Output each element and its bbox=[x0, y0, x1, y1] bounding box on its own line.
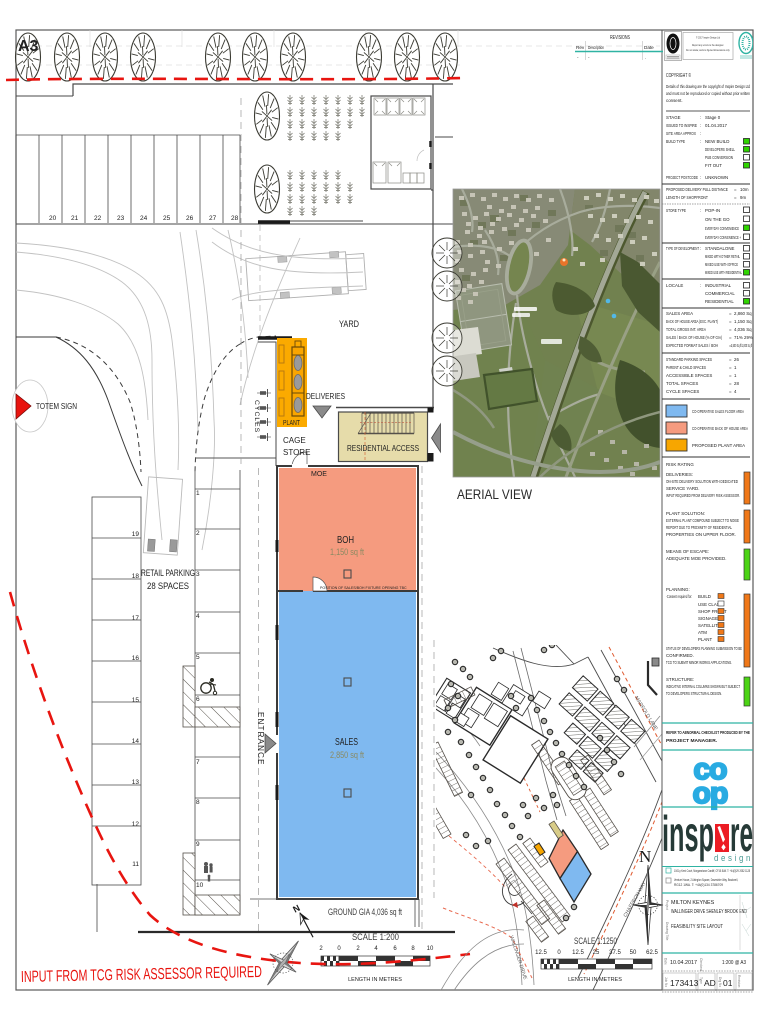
svg-text:NEW BUILD: NEW BUILD bbox=[705, 139, 729, 144]
svg-text::: : bbox=[700, 115, 701, 120]
svg-text:N: N bbox=[639, 847, 651, 866]
svg-text:10: 10 bbox=[427, 946, 434, 952]
svg-text:STRUCTURE:: STRUCTURE: bbox=[666, 677, 694, 682]
svg-text:10m: 10m bbox=[740, 187, 749, 192]
svg-text:MILTON KEYNES: MILTON KEYNES bbox=[671, 900, 715, 906]
svg-text:EVERYDAY CONVENIENCE +: EVERYDAY CONVENIENCE + bbox=[705, 235, 741, 240]
svg-text:6: 6 bbox=[196, 696, 200, 703]
svg-text:19: 19 bbox=[132, 531, 140, 538]
svg-text::: : bbox=[700, 208, 701, 213]
svg-text:=: = bbox=[734, 187, 737, 192]
svg-text:INPUT REQUIRED FROM DELIVERY R: INPUT REQUIRED FROM DELIVERY RISK ASSESS… bbox=[666, 493, 740, 498]
svg-text::: : bbox=[700, 246, 701, 251]
svg-text:RESIDENTIAL: RESIDENTIAL bbox=[705, 299, 734, 304]
svg-text:8: 8 bbox=[196, 799, 200, 806]
svg-text:21: 21 bbox=[71, 215, 79, 222]
svg-text:15: 15 bbox=[132, 697, 140, 704]
svg-text:EVERYDAY CONVENIENCE: EVERYDAY CONVENIENCE bbox=[705, 226, 739, 231]
svg-text:© 2017 Inspire Design Ltd: © 2017 Inspire Design Ltd bbox=[696, 36, 720, 40]
svg-text:MOE: MOE bbox=[311, 471, 327, 478]
svg-text:MIXED USE WITH RESIDENTIAL: MIXED USE WITH RESIDENTIAL bbox=[705, 270, 742, 275]
svg-text:REVISIONS: REVISIONS bbox=[610, 35, 630, 41]
svg-text:YARD: YARD bbox=[339, 319, 359, 329]
svg-text:BOH: BOH bbox=[337, 535, 354, 546]
svg-text:25: 25 bbox=[593, 950, 600, 956]
svg-text:COMMERCIAL: COMMERCIAL bbox=[705, 291, 735, 296]
svg-text:TCG TO SUBMIT MINOR WORKS APPL: TCG TO SUBMIT MINOR WORKS APPLICATIONS. bbox=[666, 660, 732, 665]
svg-text:SALES / BACK OF HOUSE (% OF GI: SALES / BACK OF HOUSE (% OF GIA) bbox=[666, 335, 722, 340]
svg-text:PROPOSED PLANT AREA: PROPOSED PLANT AREA bbox=[692, 443, 745, 448]
svg-text:28 SPACES: 28 SPACES bbox=[147, 581, 189, 592]
svg-text:16: 16 bbox=[132, 655, 140, 662]
svg-text:CONFIRMED.: CONFIRMED. bbox=[666, 653, 694, 658]
svg-text:13: 13 bbox=[132, 779, 140, 786]
svg-text:MEANS OF ESCAPE:: MEANS OF ESCAPE: bbox=[666, 549, 709, 554]
svg-text:71% 29%: 71% 29% bbox=[734, 335, 753, 340]
svg-text:=: = bbox=[729, 327, 732, 332]
svg-text:CO-OPERATIVE BACK OF HOUSE ARE: CO-OPERATIVE BACK OF HOUSE AREA bbox=[692, 426, 748, 431]
svg-text:TOTAL SPACES: TOTAL SPACES bbox=[666, 381, 698, 386]
svg-text:26: 26 bbox=[734, 357, 739, 362]
svg-text:62.5: 62.5 bbox=[646, 950, 658, 956]
svg-text:ATM: ATM bbox=[698, 630, 707, 635]
svg-text:25: 25 bbox=[163, 215, 171, 222]
svg-text:WALLINGER DRIVE SHENLEY BROOK: WALLINGER DRIVE SHENLEY BROOK END bbox=[671, 909, 747, 915]
svg-text:=: = bbox=[729, 365, 732, 370]
svg-text:12.5: 12.5 bbox=[572, 950, 584, 956]
svg-text:=: = bbox=[734, 195, 737, 200]
svg-text:Rev: Rev bbox=[576, 45, 585, 50]
svg-text:and must not be reproduced or: and must not be reproduced or copied wit… bbox=[666, 91, 750, 96]
svg-text:PARENT & CHILD SPACES: PARENT & CHILD SPACES bbox=[666, 365, 706, 370]
svg-text:PROPERTIES ON UPPER FLOOR.: PROPERTIES ON UPPER FLOOR. bbox=[666, 532, 736, 537]
svg-text:CYCLES: CYCLES bbox=[253, 400, 260, 433]
svg-text:PROPOSED DELIVERY PULL DISTANC: PROPOSED DELIVERY PULL DISTANCE bbox=[666, 187, 728, 192]
svg-text:23: 23 bbox=[117, 215, 125, 222]
svg-text:1: 1 bbox=[196, 490, 200, 497]
svg-text:STATUS OF DEVELOPERS PLANNING: STATUS OF DEVELOPERS PLANNING SUBMISSION… bbox=[666, 646, 742, 651]
svg-text:INDUSTRIAL: INDUSTRIAL bbox=[705, 283, 732, 288]
svg-text::: : bbox=[700, 131, 701, 136]
svg-text:BUILD TYPE: BUILD TYPE bbox=[666, 139, 685, 144]
svg-text:ENTRANCE: ENTRANCE bbox=[256, 712, 265, 766]
svg-text:=: = bbox=[729, 335, 732, 340]
svg-text:Description: Description bbox=[588, 45, 604, 50]
svg-text:=: = bbox=[729, 357, 732, 362]
svg-text:BUILD: BUILD bbox=[698, 594, 711, 599]
svg-text:50: 50 bbox=[630, 950, 637, 956]
svg-text:Stage 0: Stage 0 bbox=[705, 115, 721, 120]
svg-text:MIXED WITH OTHER RETAIL: MIXED WITH OTHER RETAIL bbox=[705, 254, 740, 259]
svg-text:TYPE OF DEVELOPMENT: TYPE OF DEVELOPMENT bbox=[666, 246, 699, 251]
svg-text:AERIAL VIEW: AERIAL VIEW bbox=[457, 486, 533, 502]
svg-text:CAGE: CAGE bbox=[283, 436, 306, 445]
svg-text:=: = bbox=[729, 373, 732, 378]
svg-text:Drg No: Drg No bbox=[718, 977, 722, 987]
svg-text:Date: Date bbox=[644, 45, 654, 50]
svg-text:AD: AD bbox=[704, 978, 716, 988]
svg-text:ADEQUATE MOE PROVIDED.: ADEQUATE MOE PROVIDED. bbox=[666, 556, 726, 561]
svg-text:10: 10 bbox=[196, 882, 204, 889]
svg-text:DELIVERIES:: DELIVERIES: bbox=[666, 472, 693, 477]
svg-text:consent.: consent. bbox=[666, 98, 683, 103]
svg-text:PLANNING:: PLANNING: bbox=[666, 587, 690, 592]
svg-text:SITE AREA APPROX: SITE AREA APPROX bbox=[666, 131, 696, 136]
svg-text:Date: Date bbox=[664, 958, 668, 965]
svg-text:12.5: 12.5 bbox=[535, 950, 547, 956]
svg-text:2: 2 bbox=[196, 530, 200, 537]
svg-text:TO DEVELOPERS STRUCTURAL DESIG: TO DEVELOPERS STRUCTURAL DESIGN. bbox=[666, 691, 722, 696]
svg-text:Type: Type bbox=[699, 977, 703, 984]
svg-text:INDICATIVE INTERNAL COLUMNS SH: INDICATIVE INTERNAL COLUMNS SHOWN BUT SU… bbox=[666, 684, 740, 689]
svg-text:MIXED USE WITH OFFICE: MIXED USE WITH OFFICE bbox=[705, 262, 738, 267]
svg-text:SCALE 1:1250: SCALE 1:1250 bbox=[574, 936, 617, 947]
svg-text:LENGTH OF SHOPFRONT: LENGTH OF SHOPFRONT bbox=[666, 195, 708, 200]
svg-text:SATELLITE: SATELLITE bbox=[698, 623, 721, 628]
svg-text:Drawing Title: Drawing Title bbox=[665, 922, 669, 941]
svg-text:=: = bbox=[729, 389, 732, 394]
svg-text:RG12 1WA. T: +44(0)134 3786709: RG12 1WA. T: +44(0)134 3786709 bbox=[674, 883, 723, 887]
svg-text:4,036 Sq ft: 4,036 Sq ft bbox=[734, 327, 756, 332]
svg-text:=: = bbox=[729, 319, 732, 324]
svg-text:REFER TO ABNORMAL CHECKLIST PR: REFER TO ABNORMAL CHECKLIST PRODUCED BY … bbox=[666, 730, 750, 736]
svg-text:5: 5 bbox=[196, 654, 200, 661]
svg-text:Report any errors to the desig: Report any errors to the designer. bbox=[692, 43, 724, 47]
svg-text:22: 22 bbox=[94, 215, 102, 222]
svg-text:STORE: STORE bbox=[283, 448, 310, 457]
svg-text:SALES AREA: SALES AREA bbox=[666, 311, 693, 316]
svg-text:7: 7 bbox=[196, 759, 200, 766]
svg-text:UNKNOWN: UNKNOWN bbox=[705, 175, 728, 180]
svg-text:STANDALONE: STANDALONE bbox=[705, 246, 735, 251]
svg-text:Job No: Job No bbox=[664, 977, 668, 987]
svg-text:CYCLE SPACES: CYCLE SPACES bbox=[666, 389, 699, 394]
svg-text:10.04.2017: 10.04.2017 bbox=[670, 960, 697, 966]
svg-text:ON THE GO: ON THE GO bbox=[705, 217, 730, 222]
svg-text:17: 17 bbox=[132, 615, 140, 622]
svg-text:12: 12 bbox=[132, 821, 140, 828]
svg-text:=: = bbox=[729, 311, 732, 316]
svg-text:Revision: Revision bbox=[737, 975, 741, 987]
svg-text:3: 3 bbox=[196, 571, 200, 578]
svg-text:26: 26 bbox=[186, 215, 194, 222]
svg-text:COPYRIGHT ©: COPYRIGHT © bbox=[666, 72, 691, 79]
svg-text:insp: insp bbox=[662, 806, 714, 862]
svg-text:PLANT: PLANT bbox=[283, 418, 300, 427]
svg-text:BACK OF HOUSE AREA (EXC. PLANT: BACK OF HOUSE AREA (EXC. PLANT) bbox=[666, 319, 718, 324]
svg-text:Checked: Checked bbox=[699, 958, 703, 971]
svg-text:10/11y Kent Court, Morganstown: 10/11y Kent Court, Morganstown Cardiff, … bbox=[674, 869, 750, 873]
svg-text:RESIDENTIAL ACCESS: RESIDENTIAL ACCESS bbox=[347, 443, 419, 453]
svg-text:SALES: SALES bbox=[335, 737, 358, 748]
svg-text:TOTEM SIGN: TOTEM SIGN bbox=[36, 401, 77, 411]
svg-text:design: design bbox=[714, 853, 753, 863]
svg-text:STAGE: STAGE bbox=[666, 115, 681, 120]
svg-text::: : bbox=[700, 139, 701, 144]
svg-text:14: 14 bbox=[132, 738, 140, 745]
svg-text:LENGTH IN METRES: LENGTH IN METRES bbox=[348, 977, 402, 983]
svg-text:2,860 Sq ft: 2,860 Sq ft bbox=[734, 311, 756, 316]
svg-text:PROJECT MANAGER.: PROJECT MANAGER. bbox=[666, 738, 718, 744]
svg-text:-Consent required for:: -Consent required for: bbox=[666, 594, 692, 599]
svg-text::: : bbox=[700, 175, 701, 180]
svg-text:27: 27 bbox=[209, 215, 217, 222]
svg-text:STANDARD PARKING SPACES: STANDARD PARKING SPACES bbox=[666, 357, 712, 362]
svg-text:9m: 9m bbox=[740, 195, 746, 200]
svg-text:EXPECTED FORMAT SALES / BOH: EXPECTED FORMAT SALES / BOH bbox=[666, 343, 718, 348]
svg-text:24: 24 bbox=[140, 215, 148, 222]
svg-text:PUB CONVERSION: PUB CONVERSION bbox=[705, 155, 733, 160]
svg-text:9: 9 bbox=[196, 841, 200, 848]
svg-text:ACCESSIBLE SPACES: ACCESSIBLE SPACES bbox=[666, 373, 712, 378]
svg-text:1,150 sq ft: 1,150 sq ft bbox=[330, 547, 364, 557]
svg-text:28: 28 bbox=[231, 215, 239, 222]
svg-text:PLANT SOLUTION:: PLANT SOLUTION: bbox=[666, 511, 705, 516]
svg-text:SIGNAGE: SIGNAGE bbox=[698, 616, 718, 621]
svg-text:01.04.2017: 01.04.2017 bbox=[705, 123, 728, 128]
svg-text:37.5: 37.5 bbox=[609, 950, 621, 956]
svg-text:4: 4 bbox=[196, 613, 200, 620]
svg-text:.: . bbox=[645, 55, 646, 60]
svg-text:RISK RATING: RISK RATING bbox=[666, 462, 694, 467]
svg-text:SERVICE YARD.: SERVICE YARD. bbox=[666, 486, 699, 491]
svg-text:Details of this drawing are th: Details of this drawing are the copyrigh… bbox=[666, 84, 750, 89]
svg-text:11: 11 bbox=[132, 861, 139, 868]
svg-text:18: 18 bbox=[132, 573, 140, 580]
svg-text:PROJECT POSTCODE: PROJECT POSTCODE bbox=[666, 175, 698, 180]
svg-text:EXTERNAL PLANT COMPOUND SUBJEC: EXTERNAL PLANT COMPOUND SUBJECT TO NOISE bbox=[666, 518, 739, 523]
svg-text:28: 28 bbox=[734, 381, 739, 386]
svg-text:POSITION OF SALES/BOH FIXTURE: POSITION OF SALES/BOH FIXTURE OPENING TB… bbox=[320, 586, 407, 590]
svg-text:2,500 Sq ft/1,000 Sq ft: 2,500 Sq ft/1,000 Sq ft bbox=[731, 343, 752, 348]
svg-text:SCALE 1:200: SCALE 1:200 bbox=[352, 932, 399, 943]
svg-text:DELIVERIES: DELIVERIES bbox=[306, 391, 345, 401]
svg-text:173413: 173413 bbox=[670, 978, 699, 988]
svg-text:CO-OPERATIVE SALES FLOOR AREA: CO-OPERATIVE SALES FLOOR AREA bbox=[692, 409, 744, 414]
svg-text:LENGTH IN METRES: LENGTH IN METRES bbox=[568, 977, 622, 983]
svg-text:DEVELOPERS SHELL: DEVELOPERS SHELL bbox=[705, 147, 735, 152]
svg-text:20: 20 bbox=[49, 215, 57, 222]
svg-text:FEASIBILITY SITE LAYOUT: FEASIBILITY SITE LAYOUT bbox=[671, 924, 724, 930]
svg-text:FIT OUT: FIT OUT bbox=[705, 163, 722, 168]
svg-text::: : bbox=[700, 283, 701, 288]
svg-text:RETAIL PARKING: RETAIL PARKING bbox=[141, 568, 195, 579]
svg-text:Do not scale; work to figured: Do not scale; work to figured dimensions… bbox=[686, 48, 730, 52]
svg-text:1:200 @ A3: 1:200 @ A3 bbox=[722, 960, 746, 966]
svg-text:1,150 Sq ft: 1,150 Sq ft bbox=[734, 319, 756, 324]
svg-text:STORE TYPE: STORE TYPE bbox=[666, 208, 686, 213]
svg-text:PLANT: PLANT bbox=[698, 637, 712, 642]
svg-text:=: = bbox=[729, 381, 732, 386]
svg-text:Project: Project bbox=[665, 900, 669, 910]
svg-text:POP-IN: POP-IN bbox=[705, 208, 720, 213]
svg-text:A3: A3 bbox=[18, 38, 39, 55]
svg-text:LOCALE: LOCALE bbox=[666, 283, 683, 288]
svg-text:REPORT DUE TO PROXIMITY OF RES: REPORT DUE TO PROXIMITY OF RESIDENTIAL bbox=[666, 525, 732, 530]
svg-text:01: 01 bbox=[723, 978, 733, 988]
svg-text::: : bbox=[700, 123, 701, 128]
svg-text:ISSUED TO INSPIRE: ISSUED TO INSPIRE bbox=[666, 123, 697, 128]
svg-text:GROUND GIA 4,036 sq ft: GROUND GIA 4,036 sq ft bbox=[328, 907, 402, 917]
svg-text:TOTAL GROSS INT. AREA: TOTAL GROSS INT. AREA bbox=[666, 327, 706, 332]
svg-text:2,850 sq ft: 2,850 sq ft bbox=[330, 750, 364, 760]
svg-text:Venture House, 2 Arlington Squ: Venture House, 2 Arlington Square, Downs… bbox=[674, 878, 738, 882]
svg-text:ON-SITE DELIVERY SOLUTION WITH: ON-SITE DELIVERY SOLUTION WITH DEDICATED bbox=[666, 479, 738, 484]
